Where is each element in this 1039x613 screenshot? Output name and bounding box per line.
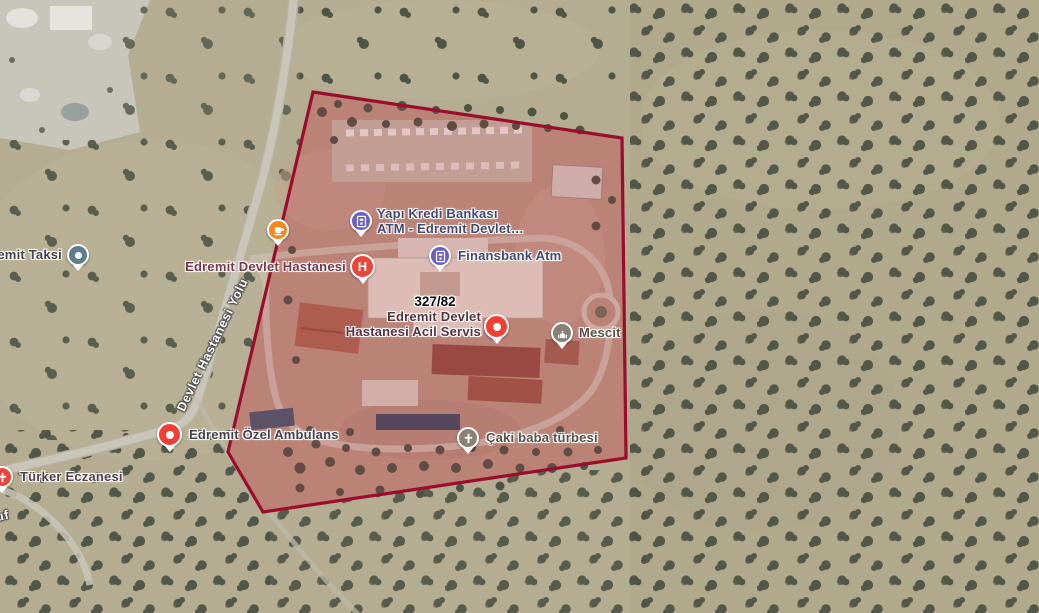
hospital-marker[interactable]: H: [350, 254, 375, 279]
tomb-cross-icon: [462, 432, 475, 445]
mosque-icon: [556, 327, 569, 340]
yapi-kredi-atm-label[interactable]: Yapı Kredi Bankası ATM - Edremit Devlet…: [377, 206, 524, 236]
acil-servis-marker[interactable]: [484, 314, 509, 339]
map-canvas[interactable]: Devlet Hastanesi Yolu uf 327/82 emit Tak…: [0, 0, 1039, 613]
mescit-marker[interactable]: [551, 322, 573, 344]
finansbank-atm-label[interactable]: Finansbank Atm: [458, 248, 561, 263]
dot-icon: [75, 252, 82, 259]
dot-icon: [166, 431, 174, 439]
turbe-label[interactable]: Çaki baba türbesi: [486, 430, 598, 445]
finansbank-atm-marker[interactable]: [429, 245, 451, 267]
ambulans-marker[interactable]: [157, 422, 182, 447]
parcel-number-label: 327/82: [414, 294, 455, 309]
hospital-label[interactable]: Edremit Devlet Hastanesi: [185, 259, 346, 274]
eczane-label[interactable]: Türker Eczanesi: [20, 469, 123, 484]
atm-icon: [355, 215, 368, 228]
taxi-marker[interactable]: [67, 244, 89, 266]
cafe-marker[interactable]: [267, 219, 289, 241]
pharmacy-cross-icon: [0, 471, 9, 484]
turbe-marker[interactable]: [457, 427, 479, 449]
atm-icon: [434, 250, 447, 263]
acil-servis-label[interactable]: Edremit Devlet Hastanesi Acil Servis: [346, 309, 481, 339]
hospital-h-icon: H: [358, 260, 367, 273]
taxi-label[interactable]: emit Taksi: [0, 247, 62, 262]
dot-icon: [493, 323, 501, 331]
yapi-kredi-atm-marker[interactable]: [350, 210, 372, 232]
satellite-imagery: [0, 0, 1039, 613]
ambulans-label[interactable]: Edremit Özel Ambulans: [189, 427, 339, 442]
cafe-cup-icon: [272, 224, 285, 237]
mescit-label[interactable]: Mescit: [579, 325, 621, 340]
